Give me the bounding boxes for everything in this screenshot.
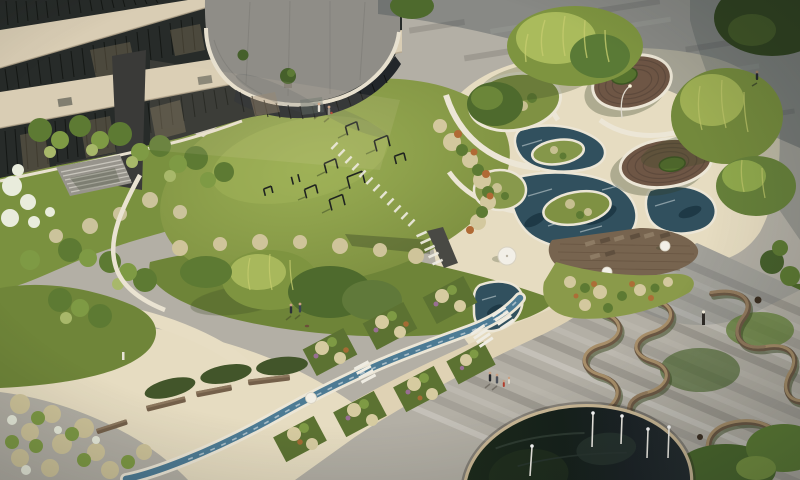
aerial-courtyard-render — [0, 0, 800, 480]
atmosphere — [0, 0, 800, 480]
